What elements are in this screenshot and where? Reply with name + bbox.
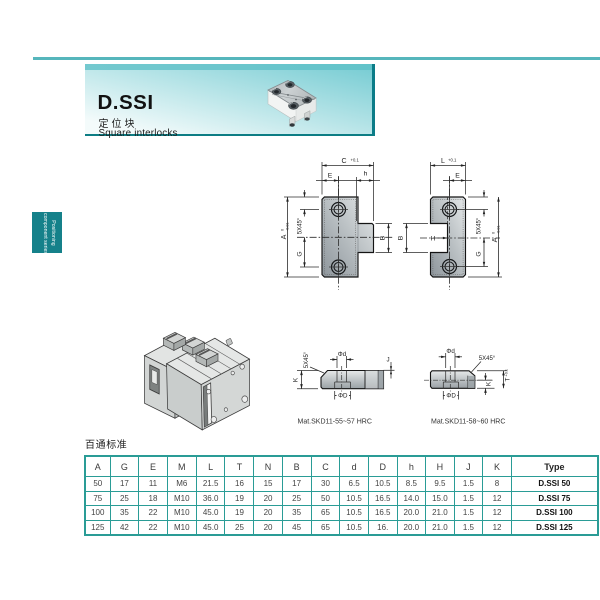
svg-text:A: A (490, 237, 499, 242)
svg-text:E: E (455, 173, 460, 180)
svg-text:ΦD: ΦD (338, 393, 348, 400)
svg-text:-0.01: -0.01 (285, 222, 289, 231)
svg-text:5X45°: 5X45° (298, 217, 304, 234)
svg-text:G: G (476, 251, 483, 256)
svg-text:ΦD: ΦD (446, 393, 456, 400)
svg-text:Φd: Φd (446, 348, 455, 355)
svg-text:B: B (380, 235, 387, 240)
svg-text:E: E (328, 173, 333, 180)
svg-text:K: K (293, 377, 300, 382)
svg-text:H: H (431, 236, 436, 243)
svg-text:C: C (341, 158, 346, 165)
svg-text:Φd: Φd (338, 351, 347, 358)
svg-text:5X45°: 5X45° (304, 351, 310, 368)
svg-text:+0.1: +0.1 (351, 158, 360, 163)
svg-text:Mat.SKD11-58~60 HRC: Mat.SKD11-58~60 HRC (431, 419, 505, 426)
svg-text:0: 0 (281, 229, 285, 231)
svg-text:K: K (486, 381, 493, 386)
svg-text:L: L (441, 158, 445, 165)
svg-text:G: G (297, 251, 304, 256)
svg-text:5X45°: 5X45° (477, 217, 483, 234)
svg-text:0: 0 (492, 232, 496, 234)
svg-text:-0.01: -0.01 (496, 225, 500, 234)
svg-text:J: J (386, 357, 389, 364)
svg-text:B: B (398, 235, 405, 240)
svg-text:T: T (505, 377, 512, 381)
svg-text:+0.1: +0.1 (505, 369, 509, 377)
svg-text:+0.1: +0.1 (448, 158, 457, 163)
svg-text:5X45°: 5X45° (479, 356, 496, 362)
svg-text:Mat.SKD11-55~57 HRC: Mat.SKD11-55~57 HRC (298, 419, 372, 426)
svg-text:A: A (279, 234, 288, 239)
svg-text:h: h (364, 171, 368, 178)
